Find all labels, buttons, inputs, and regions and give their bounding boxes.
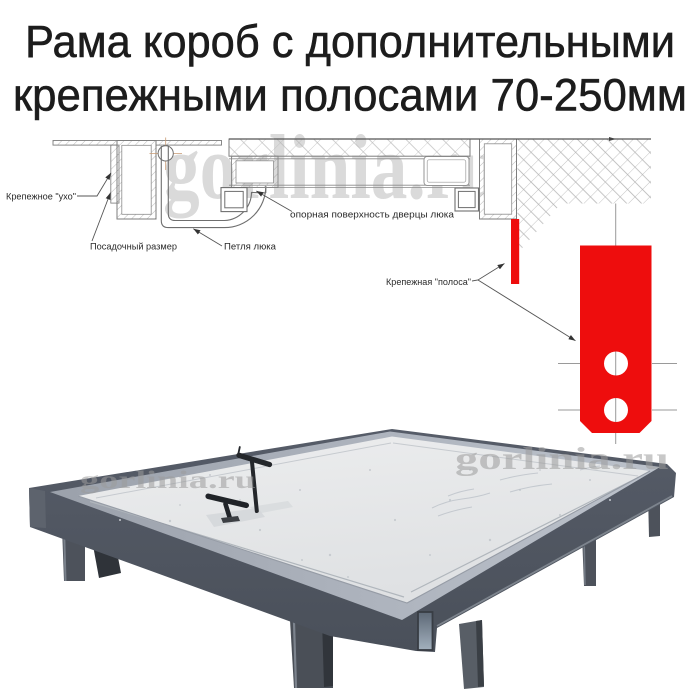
svg-text:Рама короб с дополнительными: Рама короб с дополнительными — [25, 16, 675, 67]
svg-text:крепежными полосами 70-250мм: крепежными полосами 70-250мм — [13, 70, 687, 121]
svg-text:Петля люка: Петля люка — [224, 242, 276, 252]
svg-text:Посадочный размер: Посадочный размер — [90, 242, 177, 252]
svg-text:Крепежная "полоса": Крепежная "полоса" — [386, 277, 471, 287]
svg-text:Крепежное "ухо": Крепежное "ухо" — [6, 192, 76, 202]
svg-text:gorlinia.ru: gorlinia.ru — [455, 440, 669, 476]
svg-text:опорная поверхность дверцы люк: опорная поверхность дверцы люка — [290, 210, 454, 220]
svg-text:gorlinia.ru: gorlinia.ru — [80, 467, 256, 494]
